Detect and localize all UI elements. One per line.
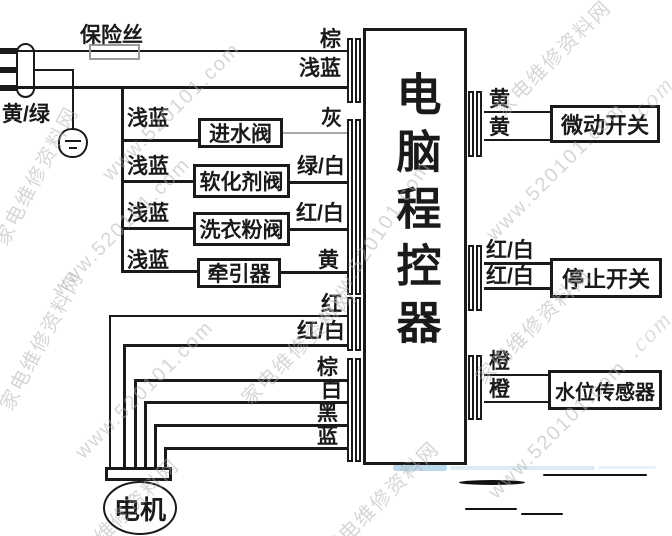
motor-wire-label-redwhite: 红/白: [297, 321, 345, 342]
faded-smudge-blue-2: [450, 466, 595, 470]
wire-orange-right-2: [484, 401, 548, 403]
motor-wire-label-black: 黑: [317, 403, 338, 424]
motor-wire-label-red: 红: [321, 294, 342, 315]
stop-switch-label: 停止开关: [562, 262, 650, 294]
micro-switch-box: 微动开关: [550, 105, 660, 143]
wire-yellow-right-1: [484, 111, 550, 113]
connector-left-top-a: [347, 38, 353, 103]
tractor-box: 牵引器: [197, 258, 281, 288]
motor-wire-label-brown: 棕: [317, 357, 338, 378]
tractor-label: 牵引器: [208, 258, 271, 288]
micro-switch-label: 微动开关: [561, 108, 649, 140]
detergent-valve-label: 洗衣粉阀: [200, 214, 284, 244]
wire-ground-stem: [72, 69, 74, 130]
ground-wire-label: 黄/绿: [2, 104, 50, 125]
feed-label-detergent: 浅蓝: [127, 203, 169, 224]
sensor-wire-label-2: 橙: [489, 379, 510, 400]
wire-motor-white-v: [144, 401, 147, 468]
softener-valve-box: 软化剂阀: [193, 164, 290, 198]
out-label-greenwhite: 绿/白: [297, 156, 345, 177]
ground-icon: [58, 128, 88, 158]
controller-box: 电脑程控器: [363, 28, 467, 465]
watermark-text: .com: [621, 306, 672, 363]
water-level-sensor-box: 水位传感器: [548, 370, 662, 410]
plug-prong-bottom: [0, 85, 17, 91]
motor-wire-label-white: 白: [321, 380, 342, 401]
plug-prong-middle: [0, 67, 17, 73]
softener-valve-label: 软化剂阀: [200, 166, 284, 196]
sensor-wire-label-1: 橙: [489, 351, 510, 372]
wire-lightblue-bus: [121, 86, 124, 273]
out-label-redwhite: 红/白: [296, 203, 344, 224]
wire-motor-brown-v: [134, 379, 137, 468]
wire-lightblue-main: [0, 86, 348, 89]
stop-wire-label-1: 红/白: [486, 240, 534, 261]
wire-motor-brown-h: [135, 379, 348, 382]
connector-left-red-a: [347, 297, 353, 351]
connector-right-stop-b: [476, 245, 482, 311]
power-plug-icon: [16, 43, 35, 98]
ground-line-short: [69, 147, 77, 149]
detergent-valve-box: 洗衣粉阀: [193, 212, 290, 246]
fuse-label: 保险丝: [80, 25, 143, 46]
out-label-yellow: 黄: [318, 250, 339, 271]
wire-greenwhite-out: [290, 181, 348, 184]
wiring-diagram: 电脑程控器 进水阀 软化剂阀 洗衣粉阀 牵引器 微动开关 停止开关 水位传感器 …: [0, 0, 672, 536]
wire-motor-blue-v: [164, 447, 167, 468]
wire-orange-right-1: [484, 374, 548, 376]
wire-motor-black-v: [154, 424, 157, 468]
wire-branch-softener: [122, 180, 193, 183]
inlet-valve-box: 进水阀: [198, 118, 283, 148]
wire-redwhite-out: [290, 228, 348, 231]
faded-smudge-blue-1: [393, 464, 447, 471]
inlet-valve-label: 进水阀: [209, 118, 272, 148]
wire-ground-horizontal: [33, 69, 74, 71]
wire-branch-detergent: [122, 227, 193, 230]
feed-label-inlet: 浅蓝: [127, 108, 169, 129]
stop-wire-label-2: 红/白: [486, 266, 534, 287]
faded-stroke-1: [543, 474, 647, 476]
motor: 电机: [103, 481, 177, 535]
faded-smudge-blue-3: [598, 466, 656, 469]
faded-stroke-3: [465, 508, 517, 510]
connector-right-micro-a: [468, 91, 474, 157]
ground-line-long: [65, 140, 81, 142]
wire-yellow-right-2: [484, 139, 550, 141]
controller-title: 电脑程控器: [393, 71, 438, 356]
feed-label-softener: 浅蓝: [127, 156, 169, 177]
wire-label-brown-top: 棕: [320, 29, 341, 50]
feed-label-tractor: 浅蓝: [127, 250, 169, 271]
motor-connector: [105, 467, 172, 481]
micro-wire-label-2: 黄: [489, 117, 510, 138]
motor-label: 电机: [114, 490, 166, 527]
micro-wire-label-1: 黄: [489, 89, 510, 110]
connector-right-sensor-a: [468, 355, 474, 420]
connector-right-sensor-b: [476, 355, 482, 420]
water-level-sensor-label: 水位传感器: [555, 376, 655, 405]
connector-right-stop-a: [468, 245, 474, 311]
out-label-gray: 灰: [321, 108, 342, 129]
plug-prong-top: [0, 48, 17, 54]
motor-wire-label-blue: 蓝: [317, 426, 338, 447]
wire-label-lightblue-top: 浅蓝: [299, 58, 341, 79]
connector-left-red-b: [355, 297, 361, 351]
stop-switch-box: 停止开关: [550, 258, 662, 298]
faded-stroke-2: [459, 480, 525, 485]
connector-left-valves-b: [355, 119, 361, 295]
connector-left-motor-b: [355, 358, 361, 462]
wire-gray-out: [283, 132, 348, 134]
connector-right-micro-b: [476, 91, 482, 157]
wire-branch-inlet: [122, 139, 198, 142]
wire-motor-red-v: [109, 315, 111, 468]
watermark-text: 家电维修资料网: [0, 265, 89, 415]
connector-left-motor-a: [347, 358, 353, 462]
connector-left-valves-a: [347, 119, 353, 295]
wire-brown-top: [0, 50, 348, 52]
connector-left-top-b: [355, 38, 361, 103]
wire-motor-redwhite-h: [124, 344, 348, 347]
wire-motor-red-h: [110, 315, 348, 317]
faded-stroke-4: [521, 513, 563, 515]
wire-motor-redwhite-v: [123, 344, 126, 468]
